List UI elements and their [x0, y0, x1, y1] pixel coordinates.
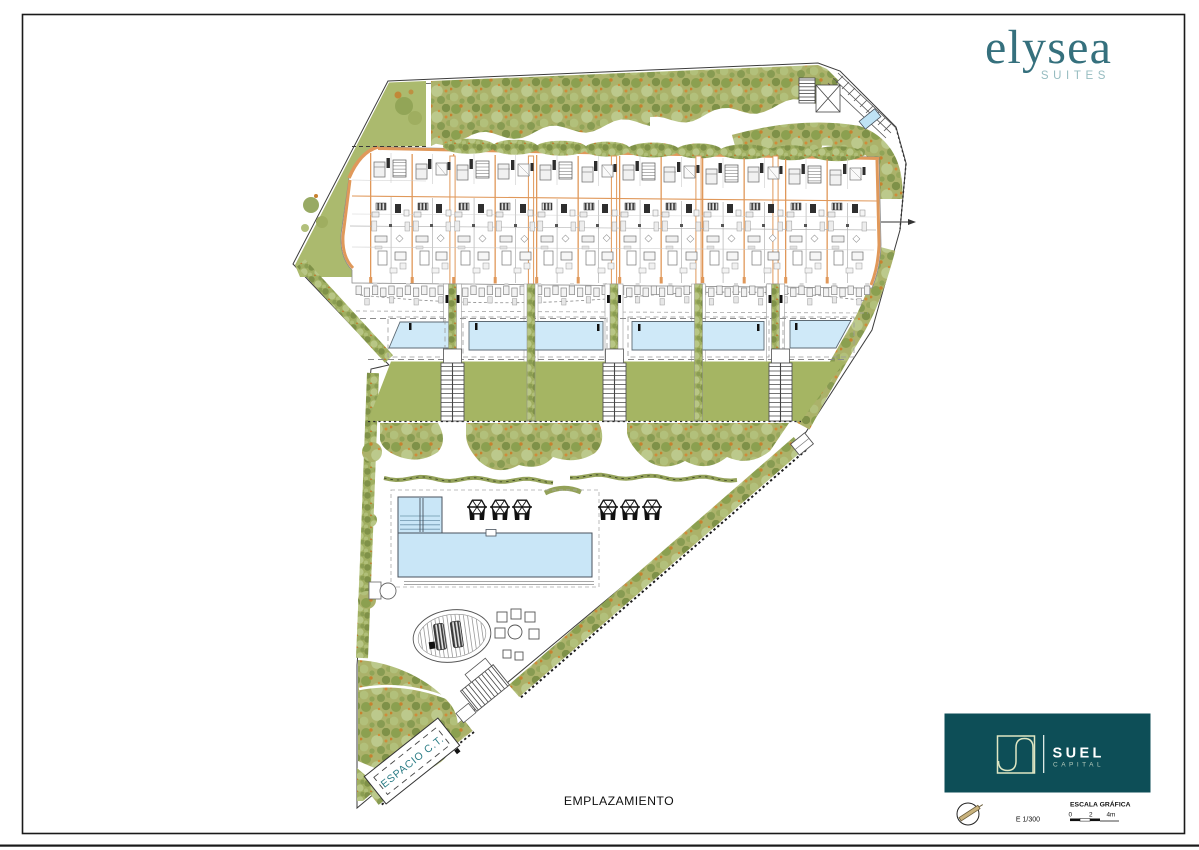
svg-text:CAPITAL: CAPITAL [1053, 762, 1104, 769]
svg-text:elysea: elysea [985, 21, 1112, 74]
svg-text:2: 2 [1089, 812, 1093, 819]
svg-text:ESCALA GRÁFICA: ESCALA GRÁFICA [1070, 800, 1131, 809]
svg-text:EMPLAZAMIENTO: EMPLAZAMIENTO [564, 794, 674, 808]
svg-text:SUITES: SUITES [1041, 70, 1110, 82]
svg-text:E 1/300: E 1/300 [1016, 817, 1040, 824]
svg-text:0: 0 [1069, 812, 1073, 819]
svg-text:SUEL: SUEL [1053, 746, 1105, 762]
svg-text:4m: 4m [1107, 812, 1116, 819]
